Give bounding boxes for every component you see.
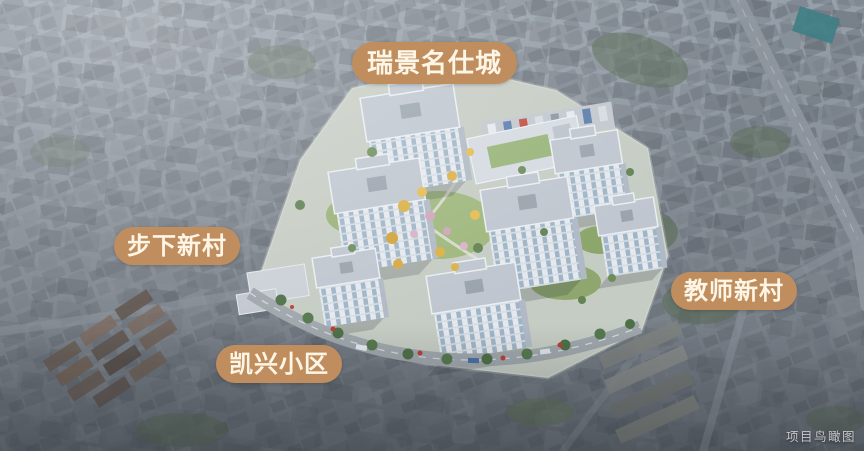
label-west-neighborhood: 步下新村 [114,227,240,265]
label-east-neighborhood: 教师新村 [671,272,797,310]
label-south-neighborhood: 凯兴小区 [216,345,342,383]
label-project-name: 瑞景名仕城 [352,42,517,84]
aerial-view-image: 瑞景名仕城 步下新村 教师新村 凯兴小区 项目鸟瞰图 [0,0,864,451]
watermark-label: 项目鸟瞰图 [786,426,856,445]
